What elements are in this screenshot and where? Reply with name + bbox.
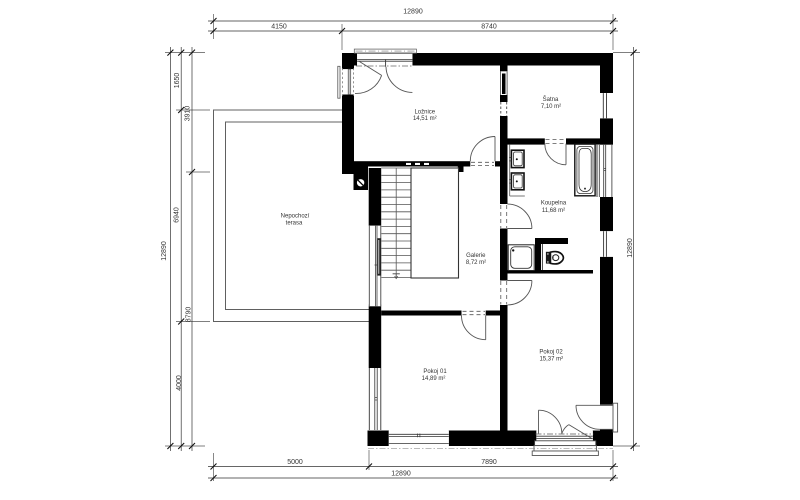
svg-text:1650: 1650	[174, 73, 181, 89]
svg-text:14,89 m²: 14,89 m²	[422, 376, 446, 382]
svg-text:Galerie: Galerie	[466, 253, 486, 259]
svg-text:14,51 m²: 14,51 m²	[413, 116, 437, 122]
svg-text:Nepochozí: Nepochozí	[281, 214, 310, 220]
svg-text:15,37 m²: 15,37 m²	[539, 357, 563, 363]
svg-text:12890: 12890	[403, 9, 423, 16]
svg-text:Koupelna: Koupelna	[541, 201, 567, 207]
svg-text:8740: 8740	[481, 24, 497, 31]
svg-text:3910: 3910	[185, 106, 192, 122]
svg-text:7890: 7890	[481, 459, 497, 466]
svg-text:Šatna: Šatna	[543, 96, 559, 103]
svg-text:6940: 6940	[174, 207, 181, 223]
svg-text:Ložnice: Ložnice	[414, 110, 435, 116]
svg-text:terasa: terasa	[286, 221, 303, 227]
svg-text:7,10 m²: 7,10 m²	[541, 104, 561, 110]
svg-text:8,72 m²: 8,72 m²	[466, 260, 486, 266]
svg-text:12890: 12890	[391, 471, 411, 478]
svg-text:4000: 4000	[176, 375, 183, 391]
svg-text:Pokoj 01: Pokoj 01	[423, 369, 447, 375]
svg-text:5000: 5000	[287, 459, 303, 466]
svg-text:4150: 4150	[271, 24, 287, 31]
svg-text:8790: 8790	[186, 307, 193, 323]
svg-text:12890: 12890	[627, 238, 634, 258]
svg-text:12890: 12890	[161, 241, 168, 261]
svg-text:Pokoj 02: Pokoj 02	[539, 350, 563, 356]
svg-text:11,68 m²: 11,68 m²	[542, 208, 565, 214]
